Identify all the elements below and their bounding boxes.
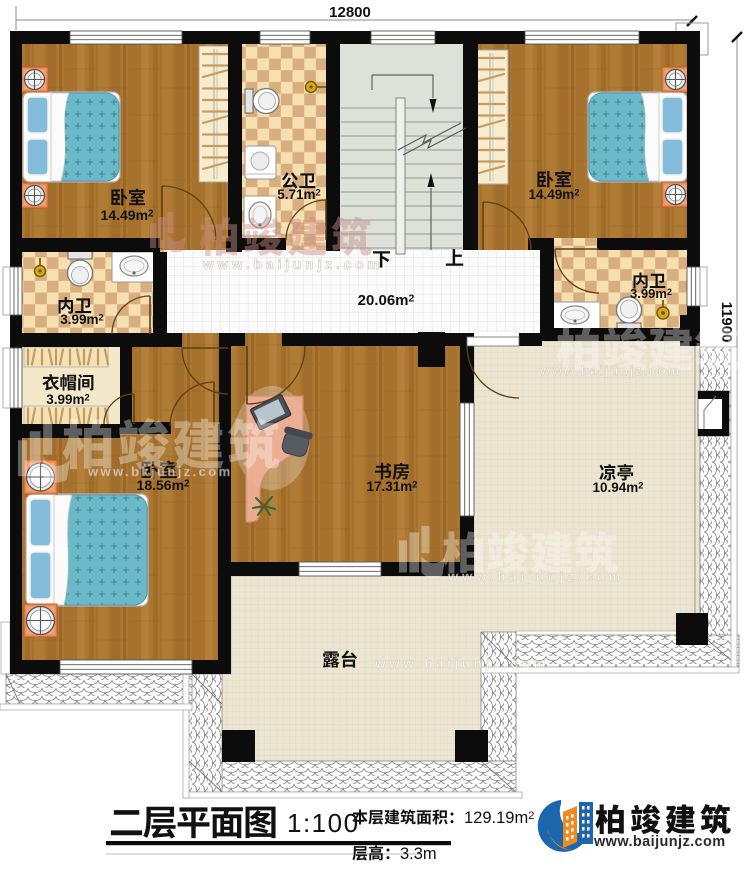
svg-text:www.baijunjz.com: www.baijunjz.com	[593, 834, 726, 850]
svg-text:www.bkjunjz.com: www.bkjunjz.com	[87, 464, 233, 479]
svg-text:www.baijunjz.com: www.baijunjz.com	[447, 569, 624, 584]
svg-text:3.99m2: 3.99m2	[60, 312, 104, 327]
svg-text:12800: 12800	[329, 4, 371, 21]
svg-text:3.99m2: 3.99m2	[630, 286, 672, 301]
svg-text:3.99m2: 3.99m2	[46, 392, 90, 407]
svg-text:17.31m2: 17.31m2	[366, 479, 417, 494]
svg-text:129.19m2: 129.19m2	[464, 809, 534, 827]
svg-text:1:100: 1:100	[287, 808, 360, 838]
svg-text:3.3m: 3.3m	[400, 845, 437, 863]
svg-text:www.baijunjz.com: www.baijunjz.com	[202, 257, 384, 272]
svg-text:18.56m2: 18.56m2	[137, 477, 190, 493]
svg-text:www.baijunjz.com: www.baijunjz.com	[374, 656, 549, 671]
svg-text:20.06m2: 20.06m2	[358, 292, 415, 309]
svg-text:14.49m2: 14.49m2	[528, 187, 579, 202]
svg-text:14.49m2: 14.49m2	[101, 207, 154, 223]
svg-text:10.94m2: 10.94m2	[592, 480, 643, 495]
svg-text:www.baijunjz.com: www.baijunjz.com	[539, 363, 681, 378]
svg-text:5.71m2: 5.71m2	[277, 187, 321, 202]
